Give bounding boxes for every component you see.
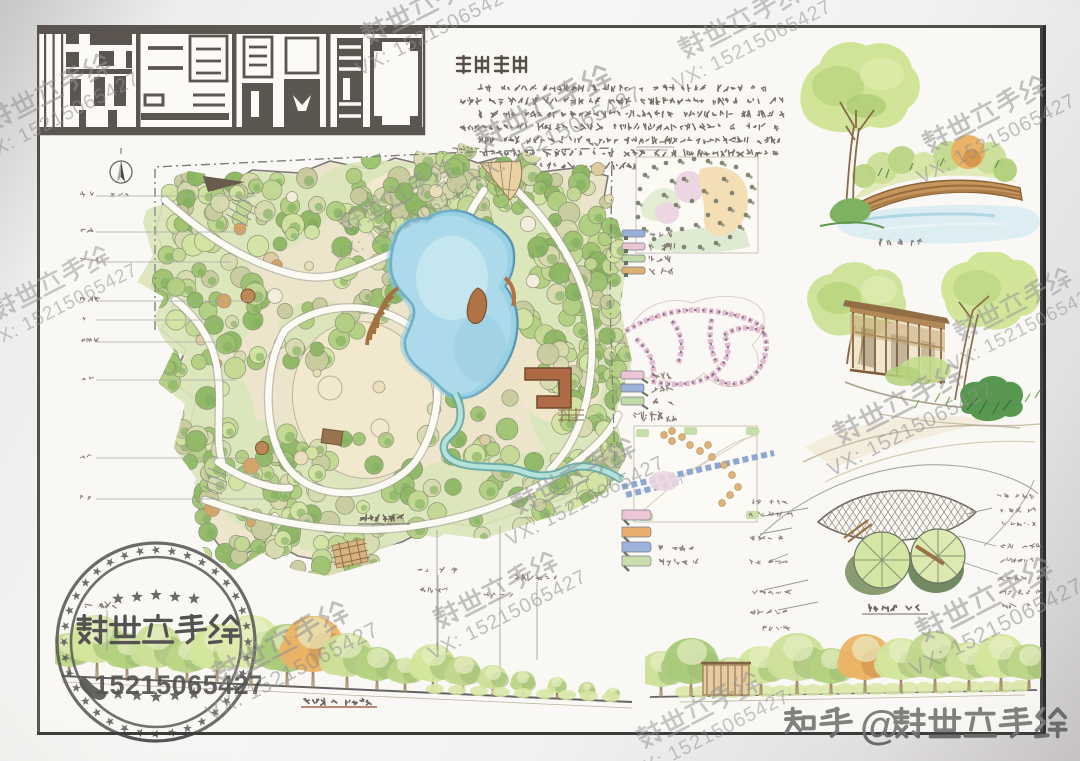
svg-text:VX: 15215065427: VX: 15215065427 [329,173,487,268]
svg-text:VX: 15215065427: VX: 15215065427 [669,0,835,95]
svg-text:VX: 15215065427: VX: 15215065427 [905,572,1080,681]
